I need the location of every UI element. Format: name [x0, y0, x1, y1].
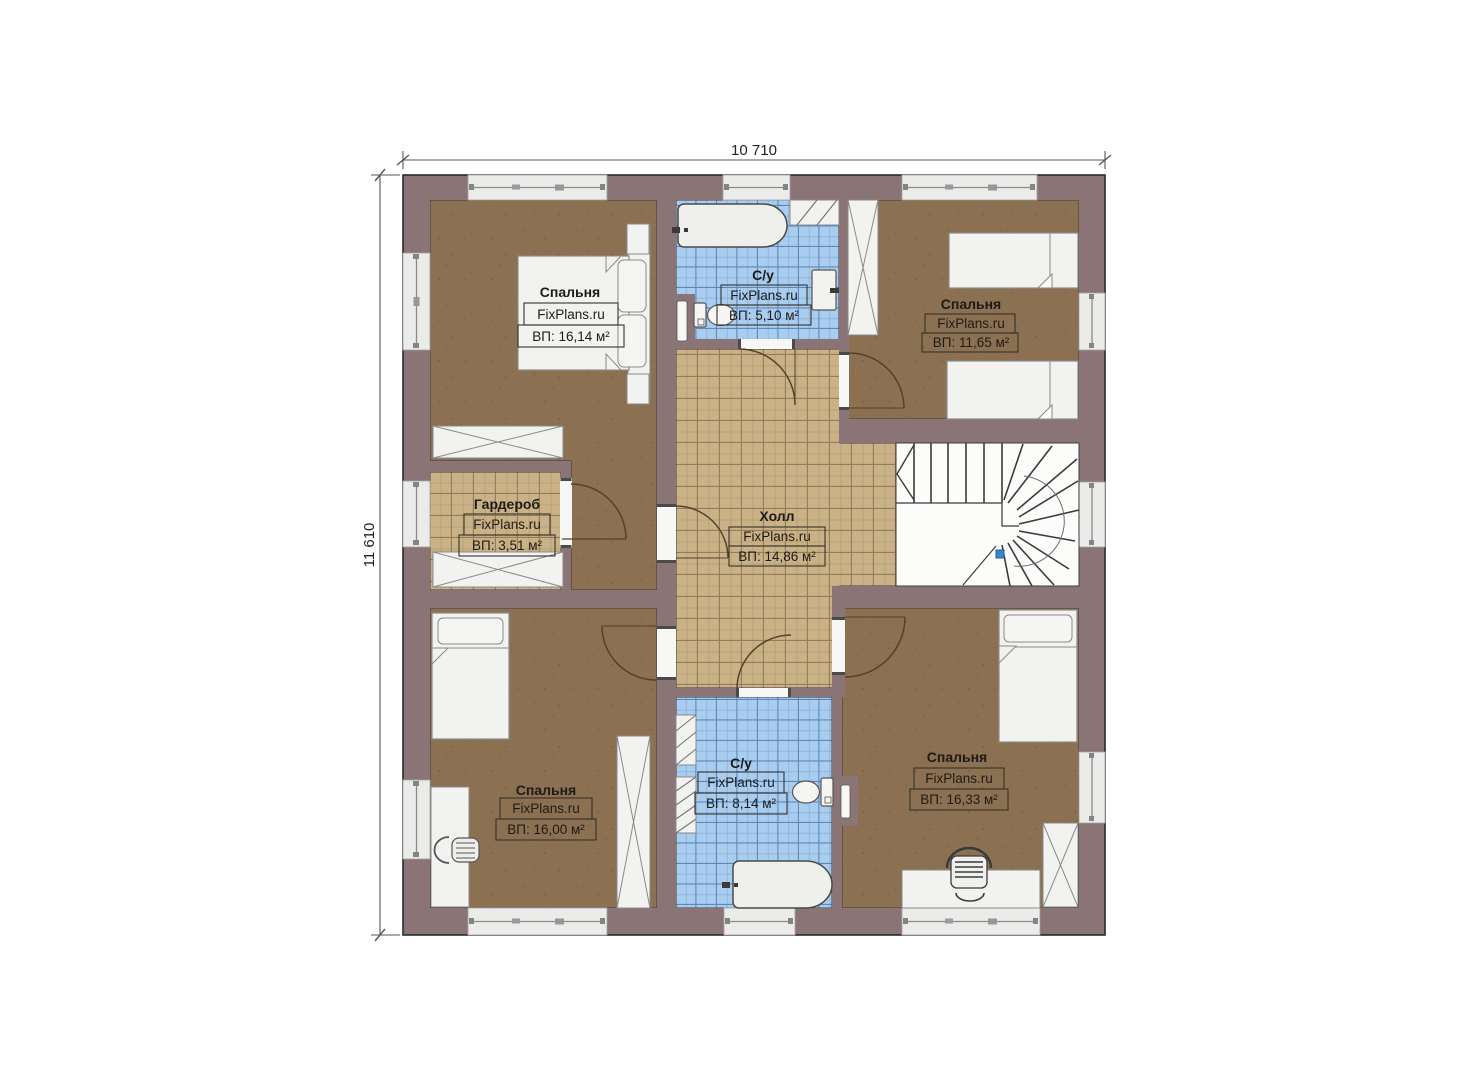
svg-text:FixPlans.ru: FixPlans.ru [925, 771, 993, 786]
svg-text:FixPlans.ru: FixPlans.ru [707, 775, 775, 790]
svg-text:ВП: 5,10 м²: ВП: 5,10 м² [729, 308, 800, 323]
svg-text:ВП: 3,51 м²: ВП: 3,51 м² [472, 538, 543, 553]
svg-text:Гардероб: Гардероб [474, 496, 541, 512]
svg-text:Спальня: Спальня [941, 296, 1001, 312]
svg-text:ВП: 16,00 м²: ВП: 16,00 м² [507, 822, 585, 837]
svg-text:ВП: 16,33 м²: ВП: 16,33 м² [920, 792, 998, 807]
svg-text:ВП: 11,65 м²: ВП: 11,65 м² [933, 335, 1010, 350]
svg-text:Спальня: Спальня [516, 782, 576, 798]
svg-text:ВП: 8,14 м²: ВП: 8,14 м² [706, 796, 777, 811]
svg-text:С/у: С/у [730, 755, 752, 771]
svg-text:Спальня: Спальня [540, 284, 600, 300]
svg-text:FixPlans.ru: FixPlans.ru [537, 307, 605, 322]
svg-text:Спальня: Спальня [927, 749, 987, 765]
svg-text:11 610: 11 610 [361, 523, 378, 568]
svg-text:FixPlans.ru: FixPlans.ru [743, 529, 811, 544]
svg-text:FixPlans.ru: FixPlans.ru [937, 316, 1005, 331]
svg-text:FixPlans.ru: FixPlans.ru [730, 288, 798, 303]
svg-text:FixPlans.ru: FixPlans.ru [473, 517, 541, 532]
svg-text:С/у: С/у [752, 267, 774, 283]
svg-text:ВП: 14,86 м²: ВП: 14,86 м² [738, 549, 816, 564]
svg-text:10 710: 10 710 [731, 142, 777, 159]
svg-text:FixPlans.ru: FixPlans.ru [512, 801, 580, 816]
svg-text:Холл: Холл [759, 508, 794, 524]
svg-text:ВП: 16,14 м²: ВП: 16,14 м² [532, 329, 610, 344]
